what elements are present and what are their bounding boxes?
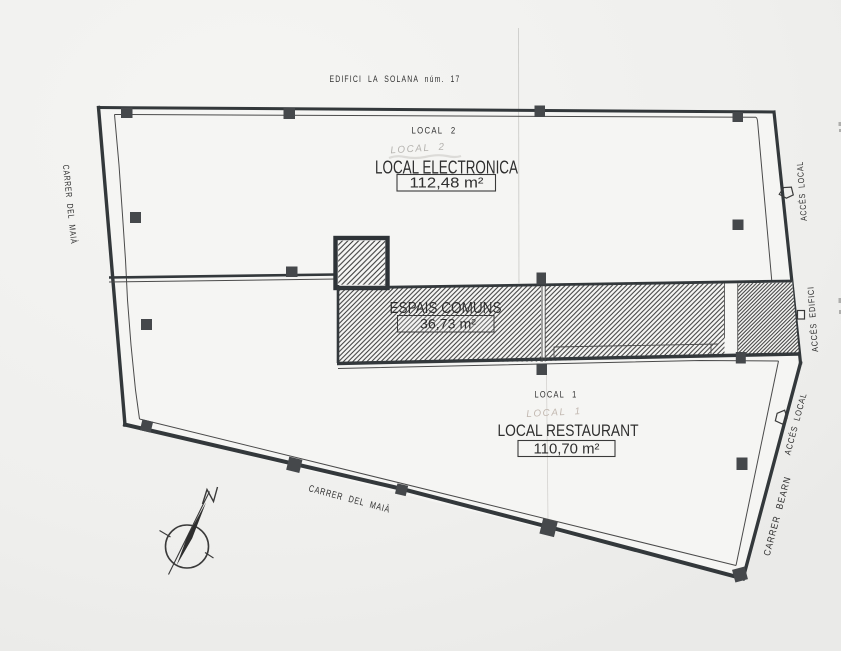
svg-text:LOCAL RESTAURANT: LOCAL RESTAURANT [498, 421, 639, 440]
svg-text:ESPAIS COMUNS: ESPAIS COMUNS [390, 300, 502, 317]
svg-text:112,48 m²: 112,48 m² [410, 176, 484, 192]
svg-text:110,70 m²: 110,70 m² [534, 442, 600, 458]
svg-text:36,73 m²: 36,73 m² [420, 317, 477, 332]
svg-text:LOCAL 1: LOCAL 1 [535, 390, 578, 400]
svg-text:EDIFICI LA SOLANA núm. 17: EDIFICI LA SOLANA núm. 17 [330, 74, 461, 85]
svg-text:LOCAL 2: LOCAL 2 [412, 126, 457, 136]
